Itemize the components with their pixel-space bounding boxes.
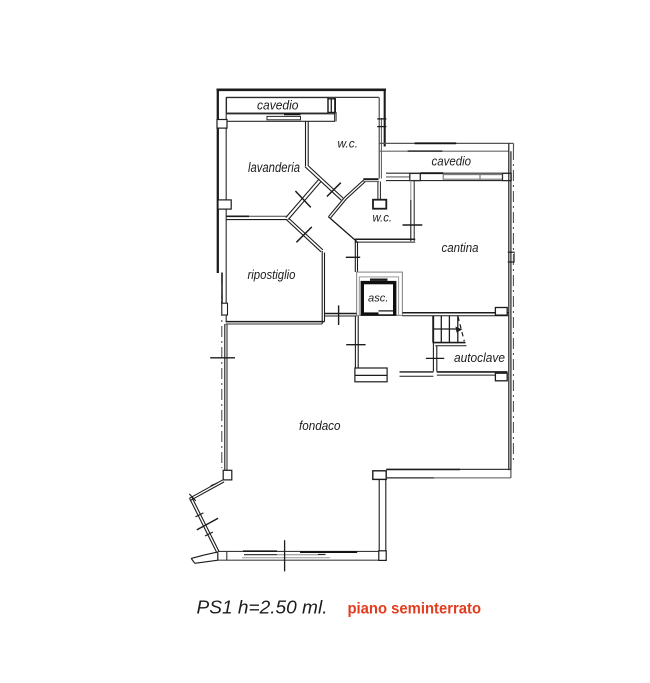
svg-text:autoclave: autoclave — [454, 351, 505, 365]
svg-text:ripostiglio: ripostiglio — [248, 267, 296, 282]
svg-text:cavedio: cavedio — [257, 98, 299, 113]
svg-text:asc.: asc. — [368, 293, 389, 305]
svg-text:cantina: cantina — [442, 241, 479, 255]
svg-text:w.c.: w.c. — [373, 213, 393, 225]
svg-text:PS1 h=2.50 ml.: PS1 h=2.50 ml. — [197, 597, 328, 618]
svg-text:w.c.: w.c. — [338, 139, 359, 151]
svg-text:piano seminterrato: piano seminterrato — [348, 601, 482, 618]
svg-text:lavanderia: lavanderia — [248, 160, 300, 175]
svg-text:fondaco: fondaco — [299, 419, 341, 433]
svg-text:cavedio: cavedio — [432, 154, 472, 169]
